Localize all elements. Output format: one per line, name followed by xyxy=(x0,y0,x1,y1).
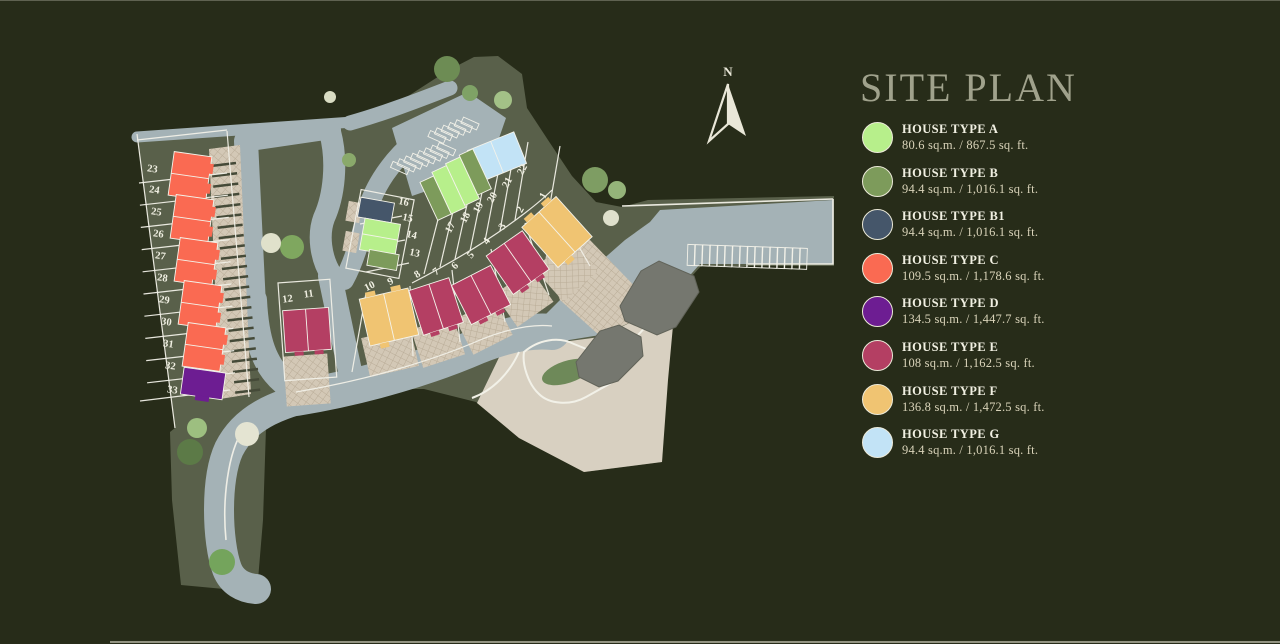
tree-icon xyxy=(261,233,281,253)
tree-icon xyxy=(342,153,356,167)
legend-size-label: 108 sq.m. / 1,162.5 sq. ft. xyxy=(902,355,1035,372)
legend-item-7: HOUSE TYPE F136.8 sq.m. / 1,472.5 sq. ft… xyxy=(862,383,1162,427)
tree-icon xyxy=(603,210,619,226)
tree-icon xyxy=(187,418,207,438)
legend-size-label: 134.5 sq.m. / 1,447.7 sq. ft. xyxy=(902,311,1045,328)
legend-size-label: 94.4 sq.m. / 1,016.1 sq. ft. xyxy=(902,181,1038,198)
lot-number-32: 32 xyxy=(164,360,176,372)
tree-icon xyxy=(280,235,304,259)
legend-swatch xyxy=(862,166,893,197)
legend: HOUSE TYPE A80.6 sq.m. / 867.5 sq. ft.HO… xyxy=(862,121,1162,470)
north-arrow-outline xyxy=(709,84,728,141)
north-compass: N xyxy=(709,64,746,141)
house-type-a-lots-14-15 xyxy=(359,218,400,256)
lot-number-26: 26 xyxy=(152,228,164,240)
north-label: N xyxy=(723,64,733,79)
lot-number-29: 29 xyxy=(158,294,170,306)
legend-swatch xyxy=(862,296,893,327)
tree-icon xyxy=(494,91,512,109)
lot-number-31: 31 xyxy=(162,338,174,350)
lot-number-15: 15 xyxy=(401,212,414,225)
legend-type-label: HOUSE TYPE B xyxy=(902,166,1038,181)
legend-type-label: HOUSE TYPE B1 xyxy=(902,209,1038,224)
house-type-c-lots-27-28 xyxy=(174,238,221,287)
tree-icon xyxy=(582,167,608,193)
page-title: SITE PLAN xyxy=(860,64,1077,111)
lot-number-28: 28 xyxy=(156,272,168,284)
legend-swatch xyxy=(862,209,893,240)
legend-item-2: HOUSE TYPE B94.4 sq.m. / 1,016.1 sq. ft. xyxy=(862,165,1162,209)
lot-number-30: 30 xyxy=(160,316,172,328)
legend-swatch xyxy=(862,253,893,284)
legend-type-label: HOUSE TYPE E xyxy=(902,340,1035,355)
lot-number-12: 12 xyxy=(282,293,294,305)
legend-size-label: 94.4 sq.m. / 1,016.1 sq. ft. xyxy=(902,442,1038,459)
legend-size-label: 80.6 sq.m. / 867.5 sq. ft. xyxy=(902,137,1028,154)
legend-item-4: HOUSE TYPE C109.5 sq.m. / 1,178.6 sq. ft… xyxy=(862,252,1162,296)
tree-icon xyxy=(235,422,259,446)
legend-item-8: HOUSE TYPE G94.4 sq.m. / 1,016.1 sq. ft. xyxy=(862,426,1162,470)
legend-type-label: HOUSE TYPE D xyxy=(902,296,1045,311)
lot-number-33: 33 xyxy=(166,384,178,396)
site-plan-page: 1234567891011121314151617181920212223242… xyxy=(0,0,1280,644)
house-type-c-lots-29-30 xyxy=(178,281,225,330)
legend-swatch xyxy=(862,340,893,371)
legend-swatch xyxy=(862,384,893,415)
legend-item-3: HOUSE TYPE B194.4 sq.m. / 1,016.1 sq. ft… xyxy=(862,208,1162,252)
lot-number-25: 25 xyxy=(150,206,162,218)
legend-swatch xyxy=(862,122,893,153)
lot-number-27: 27 xyxy=(154,250,166,262)
tree-icon xyxy=(434,56,460,82)
legend-item-1: HOUSE TYPE A80.6 sq.m. / 867.5 sq. ft. xyxy=(862,121,1162,165)
house-type-c-lots-31-32 xyxy=(182,323,229,372)
lot-number-23: 23 xyxy=(146,163,158,175)
tree-icon xyxy=(608,181,626,199)
legend-type-label: HOUSE TYPE C xyxy=(902,253,1045,268)
lot-number-13: 13 xyxy=(408,247,421,260)
tree-icon xyxy=(209,549,235,575)
legend-swatch xyxy=(862,427,893,458)
tree-icon xyxy=(324,91,336,103)
legend-item-5: HOUSE TYPE D134.5 sq.m. / 1,447.7 sq. ft… xyxy=(862,295,1162,339)
legend-size-label: 136.8 sq.m. / 1,472.5 sq. ft. xyxy=(902,399,1045,416)
legend-type-label: HOUSE TYPE G xyxy=(902,427,1038,442)
legend-size-label: 109.5 sq.m. / 1,178.6 sq. ft. xyxy=(902,268,1045,285)
legend-type-label: HOUSE TYPE F xyxy=(902,384,1045,399)
legend-size-label: 94.4 sq.m. / 1,016.1 sq. ft. xyxy=(902,224,1038,241)
tree-icon xyxy=(177,439,203,465)
lot-number-16: 16 xyxy=(397,196,410,209)
legend-item-6: HOUSE TYPE E108 sq.m. / 1,162.5 sq. ft. xyxy=(862,339,1162,383)
north-arrow-icon xyxy=(728,84,746,136)
legend-type-label: HOUSE TYPE A xyxy=(902,122,1028,137)
tree-icon xyxy=(462,85,478,101)
house-type-e-lots-11-12 xyxy=(283,307,332,356)
house-type-c-lots-23-24 xyxy=(168,152,215,201)
lot-number-11: 11 xyxy=(303,288,314,300)
house-type-c-lots-25-26 xyxy=(170,195,217,244)
